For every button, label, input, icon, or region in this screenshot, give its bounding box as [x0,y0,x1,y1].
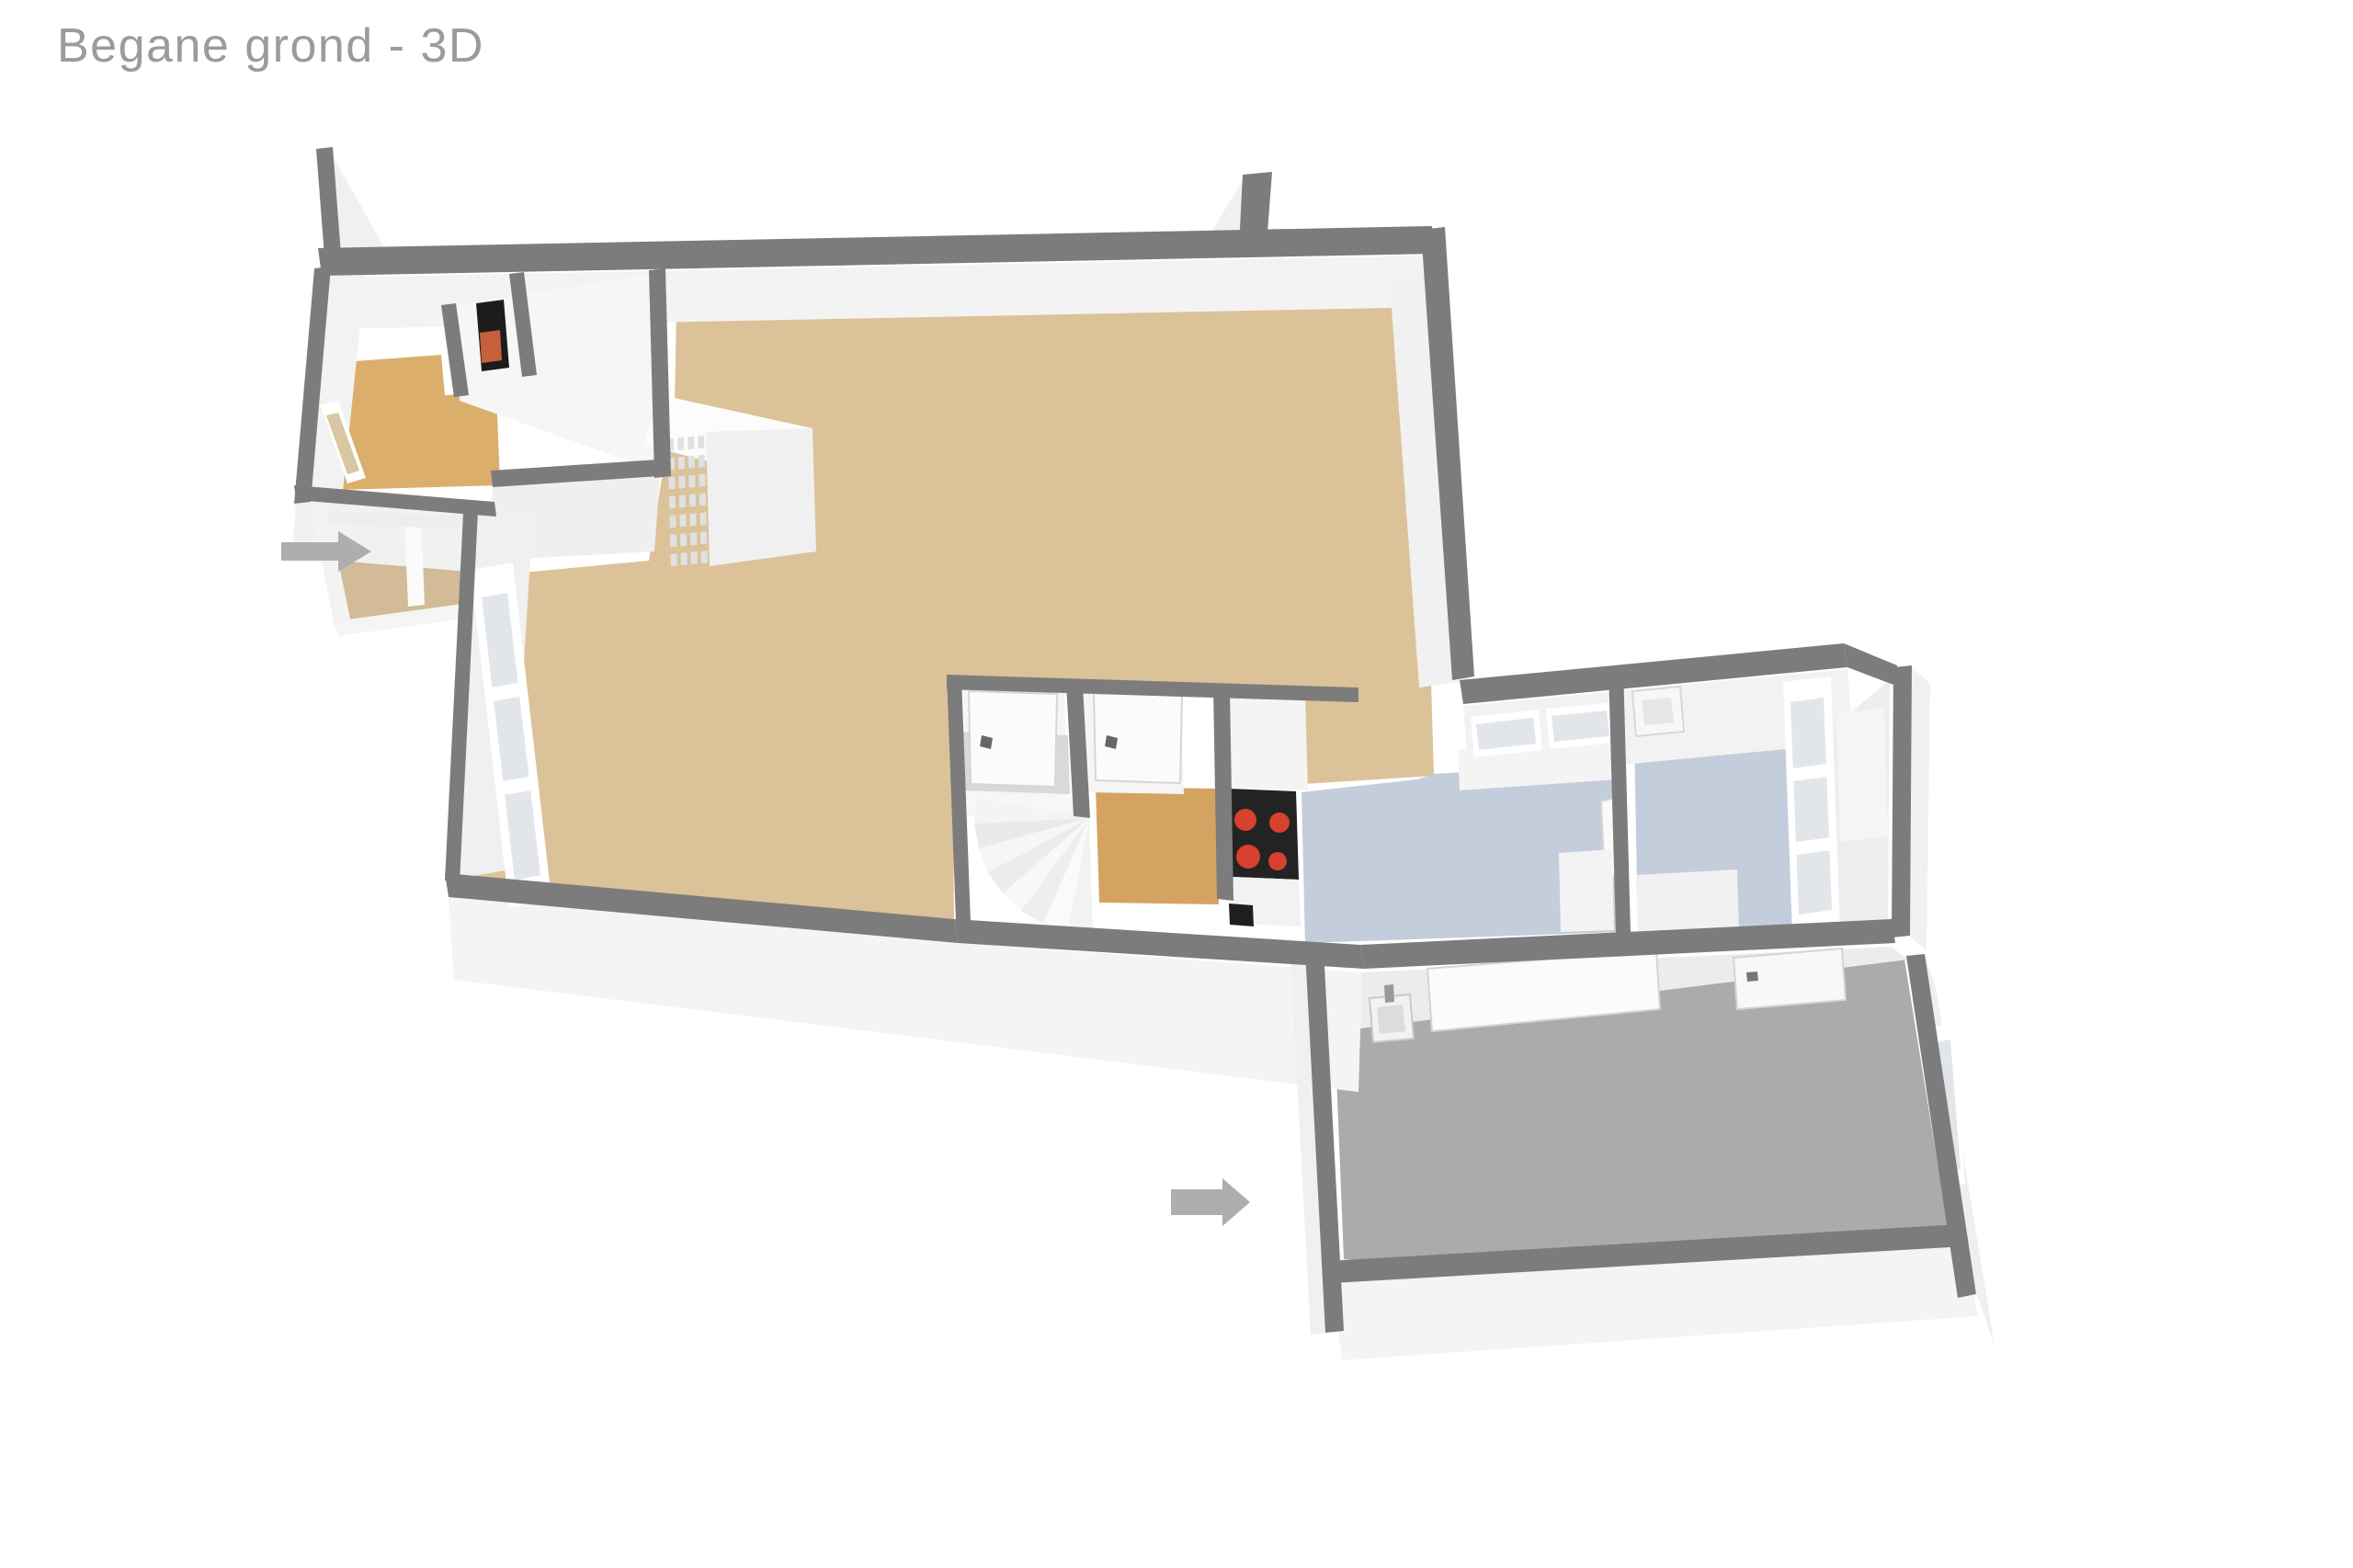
bathroom-mat [1636,869,1739,936]
kitchen-window-glass-2 [1552,710,1609,742]
cooktop [1229,789,1299,880]
shower-unit [1836,708,1888,842]
kitchen-block-counter [1229,694,1308,790]
burner-1 [1234,809,1256,831]
floorplan-3d-render [0,0,2353,1568]
burner-2 [1269,812,1290,833]
radiator-meter-box [480,330,502,363]
washbasin-bowl [1642,698,1674,725]
storage-sink-faucet [1384,984,1394,1003]
burner-4 [1268,852,1287,870]
wall-rightsec-east [1892,665,1912,937]
cabinet-side [706,428,816,566]
stair-vestibule-floor [1096,787,1219,904]
wall-bevel [1844,643,1901,687]
storage-door-handle [1746,971,1758,982]
wall-top-stub [1239,172,1272,246]
storage-sink-bowl [1377,1005,1405,1034]
oven [1229,903,1254,926]
burner-3 [1236,845,1260,869]
storage-entrance-arrow-icon [1171,1178,1250,1226]
kitchen-cabinet [1559,849,1614,932]
